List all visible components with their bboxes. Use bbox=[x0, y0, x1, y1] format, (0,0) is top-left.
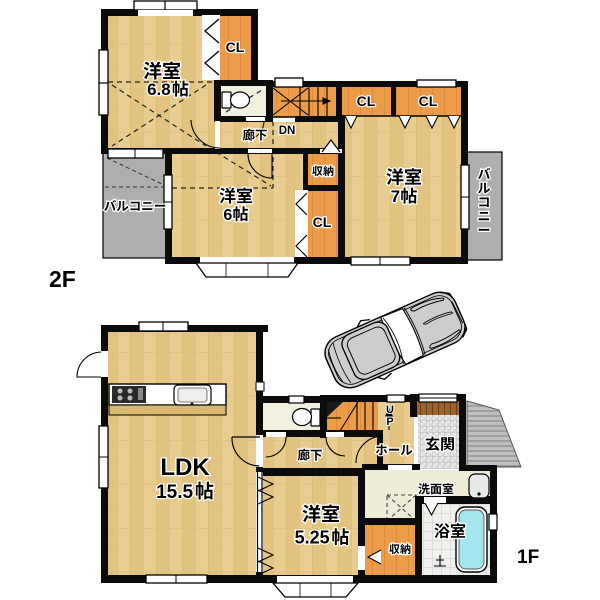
svg-text:7: 7 bbox=[391, 187, 400, 206]
svg-text:15.5: 15.5 bbox=[156, 482, 193, 503]
svg-text:CL: CL bbox=[357, 93, 376, 109]
svg-text:6.8: 6.8 bbox=[147, 80, 171, 99]
svg-text:LDK: LDK bbox=[160, 454, 210, 481]
svg-text:5.25: 5.25 bbox=[295, 528, 330, 548]
svg-text:U: U bbox=[386, 404, 394, 416]
svg-text:6: 6 bbox=[223, 207, 232, 224]
svg-text:CL: CL bbox=[419, 93, 438, 109]
svg-text:CL: CL bbox=[313, 214, 332, 230]
svg-text:1F: 1F bbox=[517, 547, 539, 568]
svg-text:DN: DN bbox=[279, 125, 296, 137]
svg-text:P: P bbox=[386, 416, 393, 428]
svg-text:2F: 2F bbox=[49, 266, 76, 292]
svg-text:CL: CL bbox=[226, 39, 245, 55]
